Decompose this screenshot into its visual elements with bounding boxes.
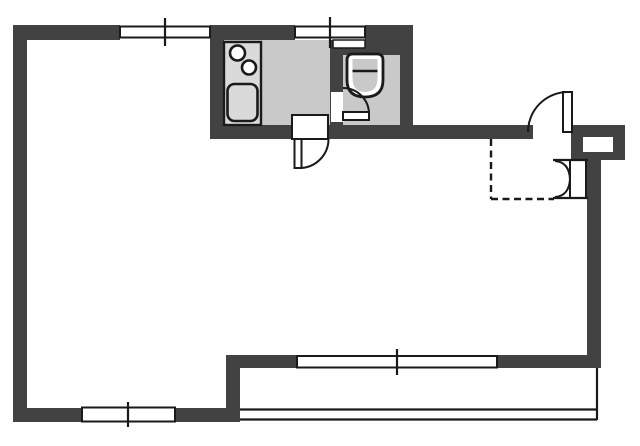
toilet-bowl-inner xyxy=(353,59,378,92)
kitchen-door-threshold xyxy=(292,115,328,139)
floor-plan xyxy=(0,0,640,446)
closet-door-leaf xyxy=(570,160,586,198)
entrance-door-leaf xyxy=(563,92,572,132)
top-wall-right xyxy=(365,25,413,40)
kitchen-sink xyxy=(228,84,258,121)
service-wall xyxy=(210,125,533,139)
stove-burner-2 xyxy=(242,61,256,75)
left-wall xyxy=(13,25,27,422)
top-wall-left xyxy=(13,25,120,40)
kitchen-left-wall xyxy=(210,40,224,139)
toilet-door-gap xyxy=(331,92,343,122)
step-wall-vertical xyxy=(226,355,240,422)
stove-burner-1 xyxy=(230,46,245,61)
toilet-window-inset xyxy=(333,40,365,48)
bottom-right-wall xyxy=(497,355,601,368)
shoe-box-niche xyxy=(583,137,613,152)
top-wall-mid xyxy=(210,25,295,40)
right-wall xyxy=(587,160,601,368)
floor-plan-page xyxy=(0,0,640,446)
kitchen-door-leaf xyxy=(295,139,302,168)
toilet-door-leaf xyxy=(343,112,369,120)
